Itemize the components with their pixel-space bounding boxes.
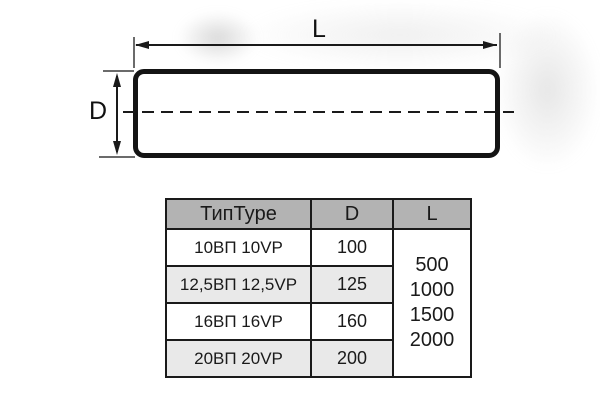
background-smudge	[178, 12, 258, 64]
length-arrow-left-icon	[135, 41, 149, 49]
length-dimension-line	[136, 44, 497, 46]
table-header-row: ТипType D L	[166, 199, 471, 229]
l-value: 2000	[394, 328, 470, 353]
d-cell: 160	[311, 303, 393, 340]
col-header-d: D	[311, 199, 393, 229]
length-extension-line-left	[133, 37, 135, 68]
background-smudge	[240, 0, 560, 70]
type-cell: 10ВП 10VP	[166, 229, 311, 266]
type-cell: 16ВП 16VP	[166, 303, 311, 340]
duct-outline	[133, 69, 500, 158]
background-smudge	[495, 10, 600, 170]
diameter-arrow-down-icon	[113, 141, 121, 155]
type-cell: 12,5ВП 12,5VP	[166, 266, 311, 303]
l-merged-cell: 500 1000 1500 2000	[393, 229, 471, 377]
table-row: 10ВП 10VP 100 500 1000 1500 2000	[166, 229, 471, 266]
d-cell: 200	[311, 340, 393, 377]
length-arrow-right-icon	[483, 41, 497, 49]
l-value: 1500	[394, 303, 470, 328]
diameter-arrow-up-icon	[113, 73, 121, 87]
d-cell: 100	[311, 229, 393, 266]
centerline	[123, 111, 514, 113]
type-cell: 20ВП 20VP	[166, 340, 311, 377]
col-header-type: ТипType	[166, 199, 311, 229]
spec-table: ТипType D L 10ВП 10VP 100 500 1000 1500 …	[165, 198, 472, 378]
diameter-label: D	[89, 97, 107, 126]
l-value: 500	[394, 253, 470, 278]
col-header-l: L	[393, 199, 471, 229]
diameter-extension-line-top	[103, 70, 134, 72]
d-cell: 125	[311, 266, 393, 303]
l-value: 1000	[394, 278, 470, 303]
diameter-extension-line-bottom	[99, 156, 135, 158]
length-extension-line-right	[499, 33, 501, 68]
technical-drawing-canvas: L D ТипType D L 10ВП 10VP 100 500 1000 1	[0, 0, 600, 400]
length-label: L	[312, 15, 326, 44]
